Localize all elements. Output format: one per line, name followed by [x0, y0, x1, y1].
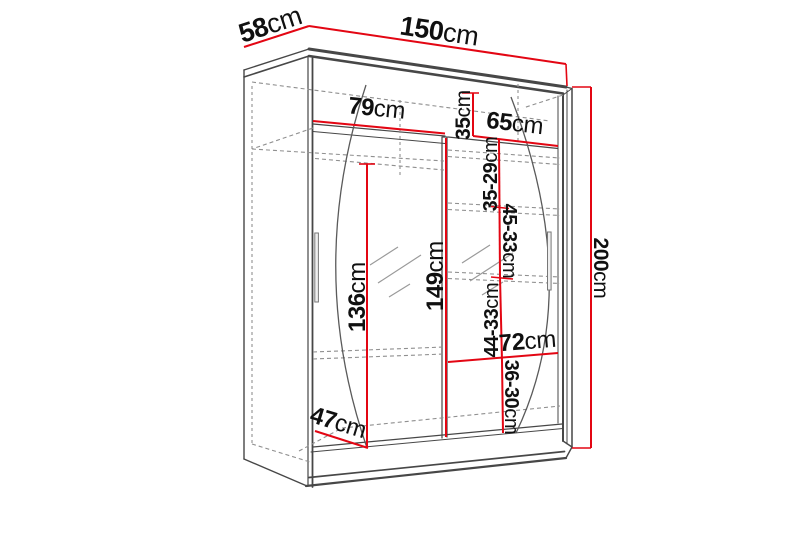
- dim-shelf-space-4: 36-30cm: [500, 360, 522, 435]
- wardrobe-dimension-diagram: 58cm 150cm 79cm 35cm 65cm 35-29cm 45-33c…: [0, 0, 800, 533]
- plinth-bottom-line: [306, 458, 566, 486]
- dim-top-shelf-height: 35cm: [452, 90, 475, 140]
- dim-top-depth: 58cm: [235, 0, 306, 48]
- dim-total-width: 150cm: [398, 10, 481, 51]
- dim-right-section-width: 65cm: [485, 107, 545, 140]
- left-top-shelf-front: [313, 124, 445, 136]
- plinth-right-corner: [566, 447, 572, 458]
- left-door-handle: [315, 233, 319, 302]
- top-right-corner: [566, 87, 572, 89]
- body-top-edge: [309, 56, 563, 94]
- dim-partition-height: 149cm: [422, 241, 449, 311]
- hanging-rail-front: [315, 159, 444, 171]
- height-dim-ticks: [572, 87, 591, 448]
- dim-left-section-width: 79cm: [347, 92, 406, 124]
- top-front-edge: [309, 49, 566, 87]
- top-panel: [244, 49, 572, 94]
- dim-total-height: 200cm: [589, 238, 612, 299]
- width-dim-tick: [566, 64, 567, 86]
- left-lower-shelf: [313, 347, 445, 359]
- floor-back-edge: [342, 406, 560, 428]
- plinth-mid-line: [309, 452, 565, 478]
- shelf-depth-diagonal: [252, 128, 313, 149]
- left-mirror-mark: [370, 247, 421, 297]
- left-bottom-edge: [244, 459, 307, 486]
- floor-left-depth-edge: [252, 444, 310, 462]
- dim-shelf-space-1: 35-29cm: [480, 137, 502, 212]
- right-shelf-1: [448, 150, 560, 165]
- dim-lower-shelf-width: 72cm: [498, 326, 557, 357]
- top-right-depth-diagonal: [523, 95, 563, 108]
- left-top-shelf-under: [313, 132, 445, 144]
- diagram-canvas: 58cm 150cm 79cm 35cm 65cm 35-29cm 45-33c…: [0, 0, 800, 533]
- dim-shelf-space-2: 45-33cm: [498, 204, 520, 279]
- right-door-handle: [548, 232, 552, 290]
- left-section-dim-line: [313, 121, 445, 134]
- dim-hanging-space-height: 136cm: [344, 262, 371, 332]
